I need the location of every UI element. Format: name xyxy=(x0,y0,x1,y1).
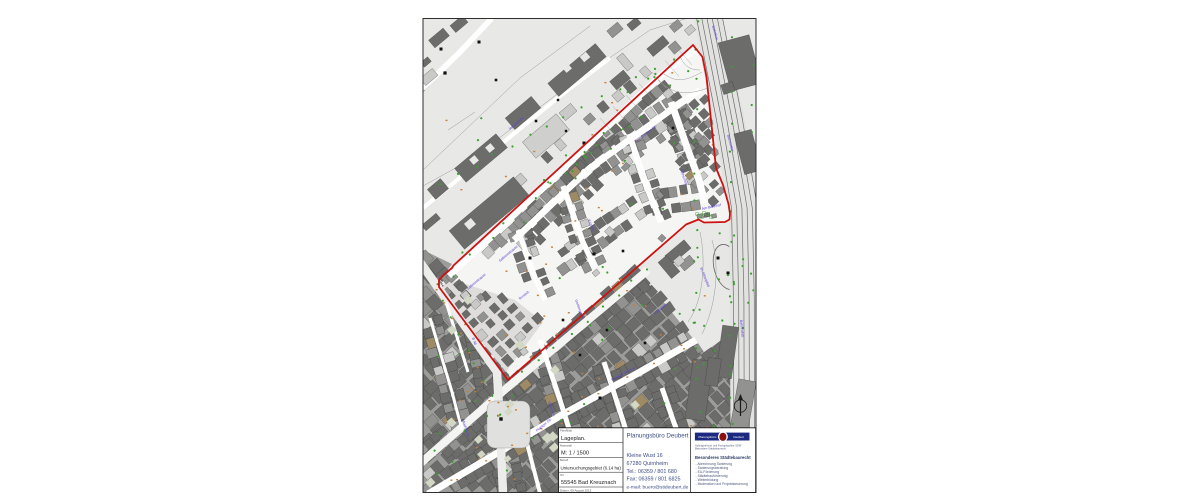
svg-text:- Moderation und Projektsteue: - Moderation und Projektsteuerung xyxy=(696,482,748,486)
svg-text:Tel.: 06359 / 801 680: Tel.: 06359 / 801 680 xyxy=(627,469,677,475)
svg-text:Plan/Blatt: Plan/Blatt xyxy=(560,429,572,433)
svg-text:Besondere Städtebaurecht: Besondere Städtebaurecht xyxy=(695,447,726,451)
svg-text:Lageplan.: Lageplan. xyxy=(561,436,586,442)
svg-text:Kleine Wust 16: Kleine Wust 16 xyxy=(627,453,663,459)
svg-text:Betreff: Betreff xyxy=(560,458,568,462)
svg-text:Datum: 09 August 2013: Datum: 09 August 2013 xyxy=(560,488,592,492)
svg-text:55545 Bad Kreuznach: 55545 Bad Kreuznach xyxy=(561,480,616,486)
svg-text:Besonderes Städtebaurecht: Besonderes Städtebaurecht xyxy=(695,455,751,460)
svg-text:Deubert: Deubert xyxy=(734,435,744,439)
svg-text:Ort: Ort xyxy=(560,473,564,477)
svg-text:67280 Quirnheim: 67280 Quirnheim xyxy=(627,461,669,467)
svg-text:M: 1 / 1500: M: 1 / 1500 xyxy=(561,451,589,457)
svg-text:Fax: 06359 / 801 6825: Fax: 06359 / 801 6825 xyxy=(627,477,681,483)
svg-text:Planungsbüro: Planungsbüro xyxy=(699,435,717,439)
svg-text:Planungsbüro Deubert: Planungsbüro Deubert xyxy=(627,433,689,440)
svg-text:Untersuchungsgebiet (6.14 ha): Untersuchungsgebiet (6.14 ha) xyxy=(561,465,622,470)
svg-text:e-mail: buero@stideubert.de: e-mail: buero@stideubert.de xyxy=(627,484,689,490)
svg-text:Maszstab: Maszstab xyxy=(560,443,572,447)
